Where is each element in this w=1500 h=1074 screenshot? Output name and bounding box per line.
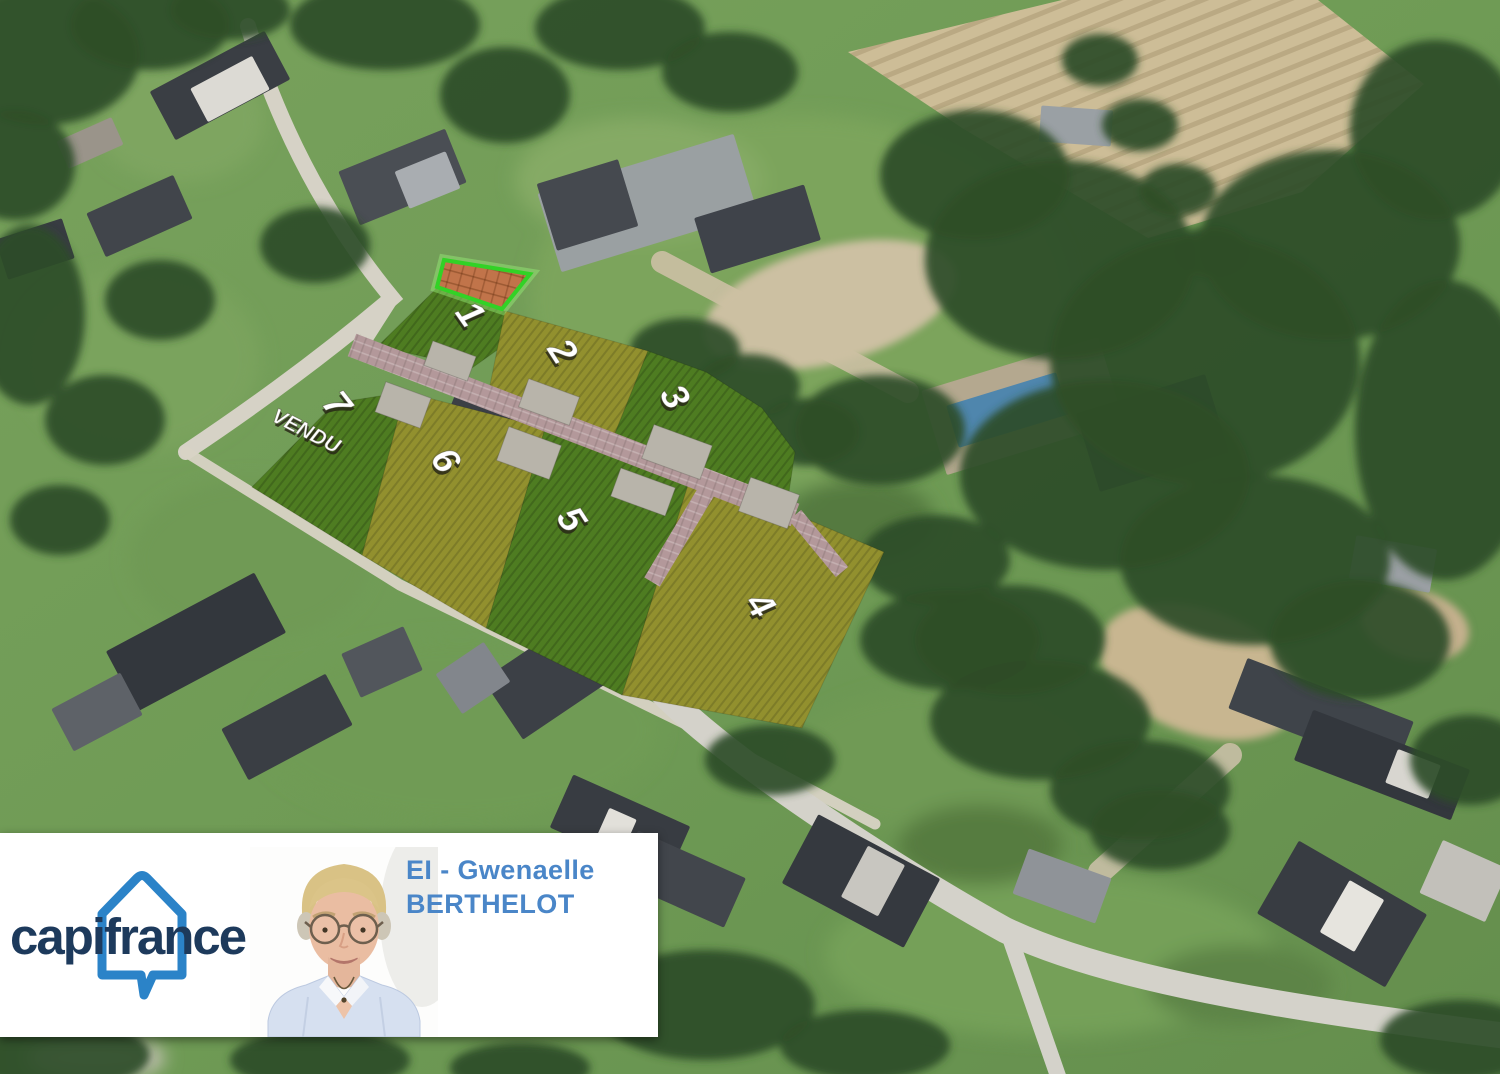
tree-clump: [45, 375, 165, 465]
tree-clump: [1270, 580, 1450, 700]
tree-clump: [1062, 34, 1138, 86]
tree-clump: [1090, 790, 1230, 870]
agent-name: EI - Gwenaelle BERTHELOT: [406, 853, 595, 921]
agency-banner: capifrance: [0, 833, 658, 1037]
tree-clump: [105, 260, 215, 340]
agent-name-line1: EI - Gwenaelle: [406, 853, 595, 887]
listing-image: 11223344556677VENDUVENDU capifrance: [0, 0, 1500, 1074]
tree-clump: [705, 725, 835, 795]
tree-clump: [1140, 164, 1216, 216]
brand-wordmark: capifrance: [10, 907, 245, 966]
tree-clump: [1174, 226, 1250, 278]
tree-clump: [260, 207, 370, 283]
tree-clump: [10, 485, 110, 555]
tree-clump: [1102, 99, 1178, 151]
tree-clump: [440, 47, 570, 143]
agent-name-line2: BERTHELOT: [406, 887, 595, 921]
tree-clump: [662, 32, 798, 112]
